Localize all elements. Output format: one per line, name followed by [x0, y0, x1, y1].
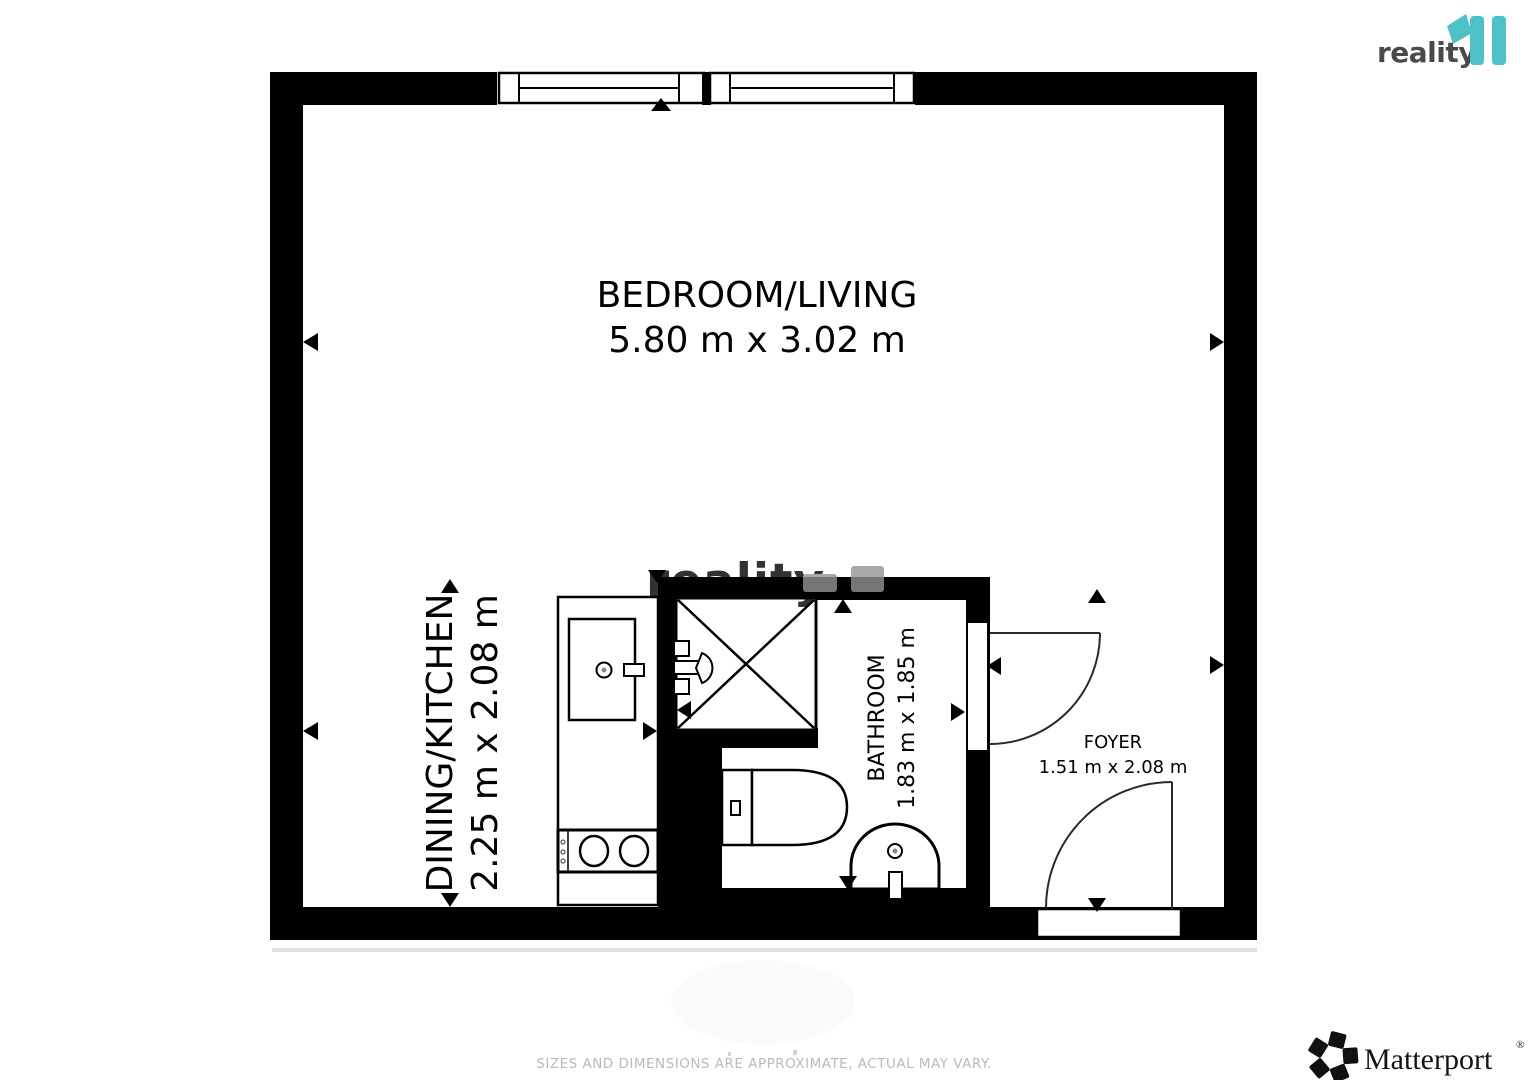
window-mullion: [702, 72, 711, 105]
dim-arrow-bathroom-up: [834, 599, 852, 613]
matterport-icon-petal: [1309, 1057, 1331, 1079]
dim-arrow-foyer-right: [1210, 656, 1224, 674]
shower-valve: [674, 679, 689, 694]
faded-mark: [793, 1050, 797, 1055]
foyer-name: FOYER: [1084, 732, 1142, 753]
dim-arrow-kitchen-left: [303, 722, 318, 740]
toilet-flush-button: [731, 801, 740, 815]
bathroom-wall-south: [658, 888, 990, 910]
matterport-icon-petal: [1342, 1047, 1358, 1064]
room-foyer: FOYER 1.51 m x 2.08 m: [1039, 732, 1188, 778]
sink-faucet: [889, 872, 902, 899]
matterport-logo-text: Matterport: [1364, 1043, 1493, 1076]
bathroom-dimensions: 1.83 m x 1.85 m: [895, 627, 920, 809]
room-dining-kitchen: DINING/KITCHEN 2.25 m x 2.08 m: [420, 594, 506, 893]
registered-mark: ®: [1516, 1039, 1524, 1051]
matterport-icon-petal: [1308, 1037, 1329, 1059]
matterport-logo: Matterport ®: [1302, 1026, 1525, 1080]
watermark-block: [851, 566, 884, 592]
wall-top-left-segment: [270, 72, 497, 105]
bathroom-door-swing-arc: [990, 633, 1100, 744]
disclaimer-text: SIZES AND DIMENSIONS ARE APPROXIMATE, AC…: [536, 1056, 991, 1072]
entrance-threshold: [1037, 909, 1181, 937]
stove-burner: [620, 836, 648, 866]
room-bathroom: BATHROOM 1.83 m x 1.85 m: [865, 627, 920, 809]
kitchen-sink-drain-dot: [602, 668, 607, 673]
wall-left: [270, 72, 303, 940]
sink-drain-dot: [893, 849, 898, 854]
wall-top-right-segment: [915, 72, 1257, 105]
foyer-dimensions: 1.51 m x 2.08 m: [1039, 757, 1188, 778]
matterport-icon: [1302, 1026, 1365, 1080]
entrance-door: [1037, 782, 1181, 937]
plan-shadow-line: [272, 948, 1257, 952]
bedroom-living-name: BEDROOM/LIVING: [597, 275, 918, 316]
reality11-logo-text: reality: [1377, 36, 1476, 69]
toilet-bowl: [752, 770, 847, 845]
shower-valve: [674, 641, 689, 656]
bathroom-sink: [851, 824, 939, 899]
bathroom-door-leaf: [967, 622, 988, 751]
bedroom-living-dimensions: 5.80 m x 3.02 m: [608, 320, 906, 361]
wall-right: [1224, 72, 1257, 940]
window-north: [497, 72, 915, 105]
floorplan-page: BEDROOM/LIVING 5.80 m x 3.02 m DINING/KI…: [0, 0, 1528, 1080]
toilet: [722, 770, 847, 845]
bathroom-door: [967, 622, 1100, 751]
watermark-block: [803, 574, 837, 592]
dim-arrow-kitchen-up: [441, 579, 459, 593]
matterport-icon-petal: [1329, 1063, 1349, 1080]
floorplan-drawing: BEDROOM/LIVING 5.80 m x 3.02 m DINING/KI…: [0, 0, 1528, 1080]
faded-watermark-blob: [671, 960, 855, 1044]
dim-arrow-foyer-up: [1088, 589, 1106, 603]
dim-arrow-kitchen-down: [441, 893, 459, 907]
reality11-bar-icon: [1492, 16, 1506, 65]
shower: [674, 598, 816, 730]
watermark-text: reality: [646, 554, 825, 609]
bathroom-wall-west-lower: [658, 748, 722, 908]
entrance-door-swing-arc: [1046, 782, 1172, 908]
kitchen-faucet: [624, 664, 644, 676]
kitchen-counter: [558, 597, 658, 905]
dining-kitchen-dimensions: 2.25 m x 2.08 m: [465, 594, 506, 892]
dim-arrow-bedroom-right: [1210, 333, 1224, 351]
reality11-bar-icon: [1470, 16, 1484, 65]
bathroom-name: BATHROOM: [865, 654, 890, 781]
stove-burner: [580, 836, 608, 866]
matterport-icon-petal: [1328, 1031, 1347, 1049]
dim-arrow-bedroom-left: [303, 333, 318, 351]
reality11-logo: reality: [1377, 14, 1506, 69]
room-bedroom-living: BEDROOM/LIVING 5.80 m x 3.02 m: [597, 275, 918, 361]
dining-kitchen-name: DINING/KITCHEN: [420, 594, 461, 893]
dim-arrow-bathroom-right: [951, 703, 965, 721]
